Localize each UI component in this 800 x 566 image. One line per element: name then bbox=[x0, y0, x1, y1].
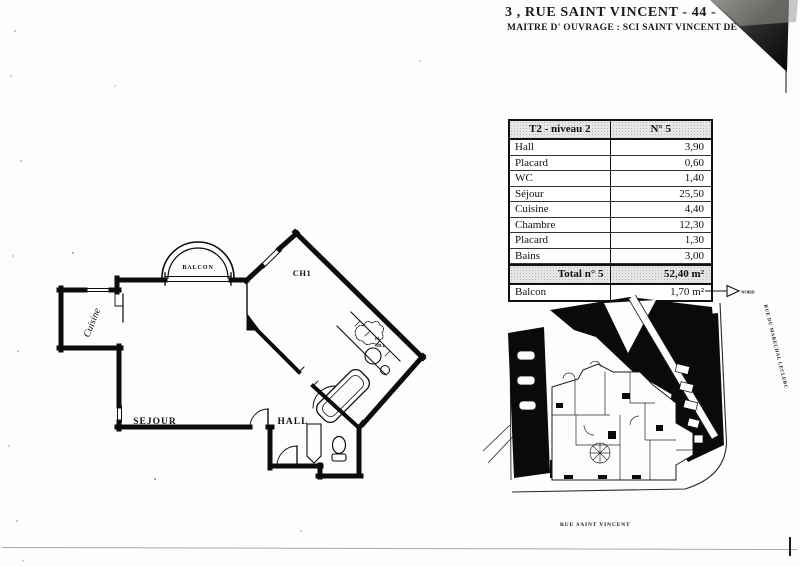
toilet-tank bbox=[332, 454, 346, 461]
window-ticks bbox=[165, 273, 231, 285]
table-row: Hall3,90 bbox=[510, 140, 711, 156]
plant-icon bbox=[355, 321, 384, 344]
scan-edge-mark bbox=[789, 537, 791, 556]
scan-speckles bbox=[14, 30, 16, 32]
table-row: Placard0,60 bbox=[510, 156, 711, 172]
room-area: 25,50 bbox=[611, 187, 712, 202]
room-label: Séjour bbox=[510, 187, 611, 202]
kitchen-window bbox=[85, 289, 111, 292]
room-area: 3,00 bbox=[611, 249, 712, 264]
table-header-type: T2 - niveau 2 bbox=[510, 121, 611, 138]
table-row: Chambre12,30 bbox=[510, 218, 711, 234]
room-area: 12,30 bbox=[611, 218, 712, 233]
kitchen-room-label: Cuisine bbox=[82, 306, 104, 339]
room-area: 4,40 bbox=[611, 202, 712, 217]
room-label: Placard bbox=[510, 156, 611, 171]
bath-wall-se bbox=[363, 356, 423, 424]
balcony-window bbox=[165, 277, 231, 282]
site-plan: NORD RUE DU MARECHAL LECLERC RUE SAINT V… bbox=[480, 275, 800, 565]
living-room-label: SEJOUR bbox=[133, 417, 176, 427]
room-area: 1,40 bbox=[611, 171, 712, 186]
bedroom-room-label: CH1 bbox=[293, 268, 312, 278]
kitchen-counter bbox=[115, 294, 123, 306]
room-area: 0,60 bbox=[611, 156, 712, 171]
room-area: 1,30 bbox=[611, 233, 712, 248]
closet-ticks bbox=[355, 321, 390, 356]
room-label: Chambre bbox=[510, 218, 611, 233]
balcony-outer-arc bbox=[162, 242, 234, 278]
room-label: WC bbox=[510, 171, 611, 186]
bedroom-wall-ne bbox=[295, 232, 423, 358]
apartment-floor-plan: BALCON CH1 SEJOUR HALL Cuisine EL MLL bbox=[55, 226, 427, 498]
north-arrow-icon bbox=[705, 286, 739, 297]
closet-mll-label: MLL bbox=[376, 343, 386, 348]
area-table-header: T2 - niveau 2 N° 5 bbox=[510, 121, 711, 140]
table-row: WC1,40 bbox=[510, 171, 711, 187]
balcony-inner-arc bbox=[168, 248, 228, 278]
bedroom-wall-nw bbox=[246, 233, 297, 281]
balcony-room-label: BALCON bbox=[182, 264, 213, 271]
room-label: Bains bbox=[510, 249, 611, 264]
door-jamb-ticks bbox=[299, 367, 318, 386]
room-label: Placard bbox=[510, 233, 611, 248]
hall-closet bbox=[307, 424, 321, 463]
door-arc-living bbox=[250, 409, 268, 427]
small-basin bbox=[381, 366, 390, 375]
closet-el-label: EL bbox=[375, 336, 381, 341]
north-label: NORD bbox=[741, 290, 755, 295]
document-title: 3 , RUE SAINT VINCENT - 44 - bbox=[505, 5, 716, 21]
bedroom-wall-sw bbox=[257, 330, 299, 372]
table-row: Placard1,30 bbox=[510, 233, 711, 249]
room-label: Cuisine bbox=[510, 202, 611, 217]
hall-room-label: HALL bbox=[278, 417, 309, 427]
table-header-number: N° 5 bbox=[611, 121, 712, 138]
table-row: Séjour25,50 bbox=[510, 187, 711, 203]
street-label-bottom: RUE SAINT VINCENT bbox=[560, 522, 631, 528]
room-area: 3,90 bbox=[611, 140, 712, 155]
scan-corner-shadow bbox=[700, 0, 800, 100]
room-label: Hall bbox=[510, 140, 611, 155]
street-label-right: RUE DU MARECHAL LECLERC bbox=[762, 304, 788, 389]
entry-walls bbox=[270, 428, 361, 477]
door-arc-entry bbox=[277, 446, 297, 466]
wc-wall-right bbox=[359, 423, 363, 476]
toilet bbox=[333, 437, 346, 454]
table-row: Bains3,00 bbox=[510, 249, 711, 265]
table-row: Cuisine4,40 bbox=[510, 202, 711, 218]
